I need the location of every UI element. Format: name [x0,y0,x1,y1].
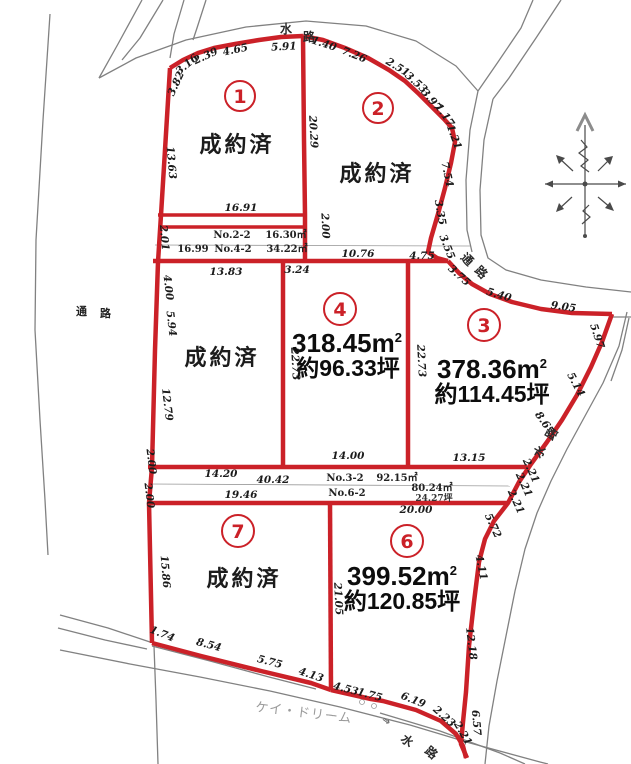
measurement-label: 20.00 [399,504,434,516]
lot-6-area: 399.52m2 [347,561,457,591]
measurement-label: 2.01 [157,223,171,251]
measurement-label: 10.76 [342,248,376,260]
measurement-label: 19.46 [225,489,259,501]
road-edge-bottom [58,628,147,649]
road-edge-bottom [60,615,150,642]
measurement-label: 7.54 [438,161,455,189]
measurement-label: 15.86 [158,555,173,589]
road-label-left: 路 [100,306,112,320]
measurement-label: 22.73 [288,346,302,380]
measurement-label: 5.97 [587,322,607,351]
lot-2-number: 2 [363,93,393,123]
road-label-left: 通 [76,305,87,318]
road-edge [611,318,629,381]
road-edge [466,91,478,252]
survey-mark [360,700,365,705]
measurement-label: 13.15 [453,452,486,464]
road-edge-bottom [152,646,316,689]
strip-prefix: 16.99 [177,244,208,255]
creek-line [154,646,158,764]
measurement-label: 12.79 [159,388,175,423]
measurement-label: 21.05 [331,581,345,615]
lot-7-status: 成約済 [206,566,281,591]
waterway-label-top: 水 [280,21,293,36]
strip-divider-line [150,484,510,486]
measurement-label: 2.00 [141,481,156,510]
measurement-label: 5.40 [485,286,514,305]
lot-1-number: 1 [225,81,255,111]
measurement-label: 2.00 [318,212,331,240]
lot-4-tsubo: 約96.33坪 [296,355,400,381]
measurement-label: 4.75 [409,250,435,262]
lot-mid-status: 成約済 [184,345,259,370]
svg-text:7: 7 [231,521,244,543]
strip-label: No.3-2 [326,473,363,484]
strip-value: 34.22㎡ [266,242,307,255]
road-edge [480,99,631,292]
watermark: ケイ・ドリーム [255,699,353,726]
land-plot-map: 1 2 3 4 6 7 成約済 成約済 成約済 成約済 318.45m2 約96… [0,0,631,764]
measurement-label: 20.29 [306,114,320,149]
svg-text:4: 4 [333,299,346,321]
measurement-label: 3.75 [445,263,472,289]
creek-line [193,0,206,40]
svg-text:1: 1 [233,86,246,108]
strip-label: No.2-2 [213,230,250,241]
lot-4-area: 318.45m2 [292,328,402,358]
survey-mark [372,704,377,709]
lot-6-number: 6 [391,525,423,557]
creek-line [170,0,184,58]
measurement-label: 22.73 [414,343,428,377]
road-edge [478,0,533,91]
measurement-label: 4.00 [160,274,175,302]
measurement-label: 1.21 [444,123,464,151]
strip-value: 16.30㎡ [265,228,306,241]
measurement-label: 14.00 [332,450,366,462]
measurement-label: 5.94 [163,310,178,337]
measurement-label: 5.91 [271,40,297,53]
lot-7-number: 7 [222,515,254,547]
strip-value: 24.27坪 [415,492,452,504]
measurement-label: 16.91 [225,202,258,214]
lot-3-area: 378.36m2 [437,354,547,384]
waterway-label-bottom: 水 [398,731,418,751]
lot-2-status: 成約済 [339,161,414,186]
measurement-label: 14.20 [205,468,239,480]
measurement-label: 13.63 [164,146,179,180]
strip-label: No.6-2 [328,488,365,499]
measurement-label: 6.57 [469,709,483,736]
svg-text:3: 3 [477,315,490,337]
strip-value: 80.24㎡ [411,481,452,494]
compass-rose [545,115,626,238]
measurement-label: 8.54 [195,636,223,654]
measurement-label: 13.83 [210,266,243,278]
measurement-label: 40.42 [257,474,290,486]
waterway-label-bottom: 路 [422,743,442,763]
lot-3-number: 3 [468,309,500,341]
road-label-right: 通 [458,250,477,269]
svg-text:2: 2 [371,98,384,120]
measurement-label: 3.24 [284,264,310,276]
strip-label: No.4-2 [214,244,251,255]
lot-6-tsubo: 約120.85坪 [344,588,460,614]
road-label-right: 路 [472,263,492,283]
waterway-label-top: 路 [303,29,316,44]
lot-3-tsubo: 約114.45坪 [434,381,549,407]
parcel-boundary [330,503,331,690]
svg-text:6: 6 [400,531,413,553]
boundary-left [35,14,50,555]
measurement-label: 12.18 [463,627,479,662]
measurement-label: 1.75 [356,686,384,704]
measurement-label: 7.26 [340,45,369,66]
lot-4-number: 4 [324,293,356,325]
lot-1-status: 成約済 [199,132,274,157]
measurement-label: 2.00 [143,447,158,476]
